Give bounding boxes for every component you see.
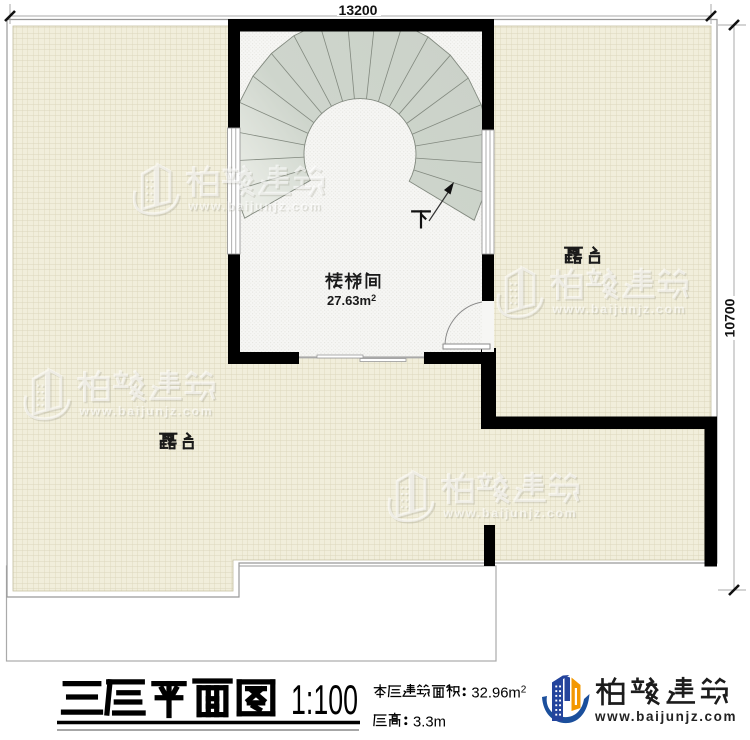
- svg-text:www.baijunjz.com: www.baijunjz.com: [78, 404, 213, 418]
- svg-text:www.baijunjz.com: www.baijunjz.com: [551, 302, 686, 316]
- svg-text:1:100: 1:100: [291, 676, 358, 723]
- svg-text:www.baijunjz.com: www.baijunjz.com: [442, 506, 577, 520]
- svg-text:32.96m2: 32.96m2: [471, 685, 526, 702]
- svg-text:www.baijunjz.com: www.baijunjz.com: [187, 199, 322, 213]
- svg-text:27.63m2: 27.63m2: [327, 293, 376, 308]
- svg-text:www.baijunjz.com: www.baijunjz.com: [594, 709, 737, 724]
- svg-text:10700: 10700: [722, 298, 738, 337]
- svg-text:13200: 13200: [339, 2, 378, 18]
- svg-text:3.3m: 3.3m: [413, 715, 446, 731]
